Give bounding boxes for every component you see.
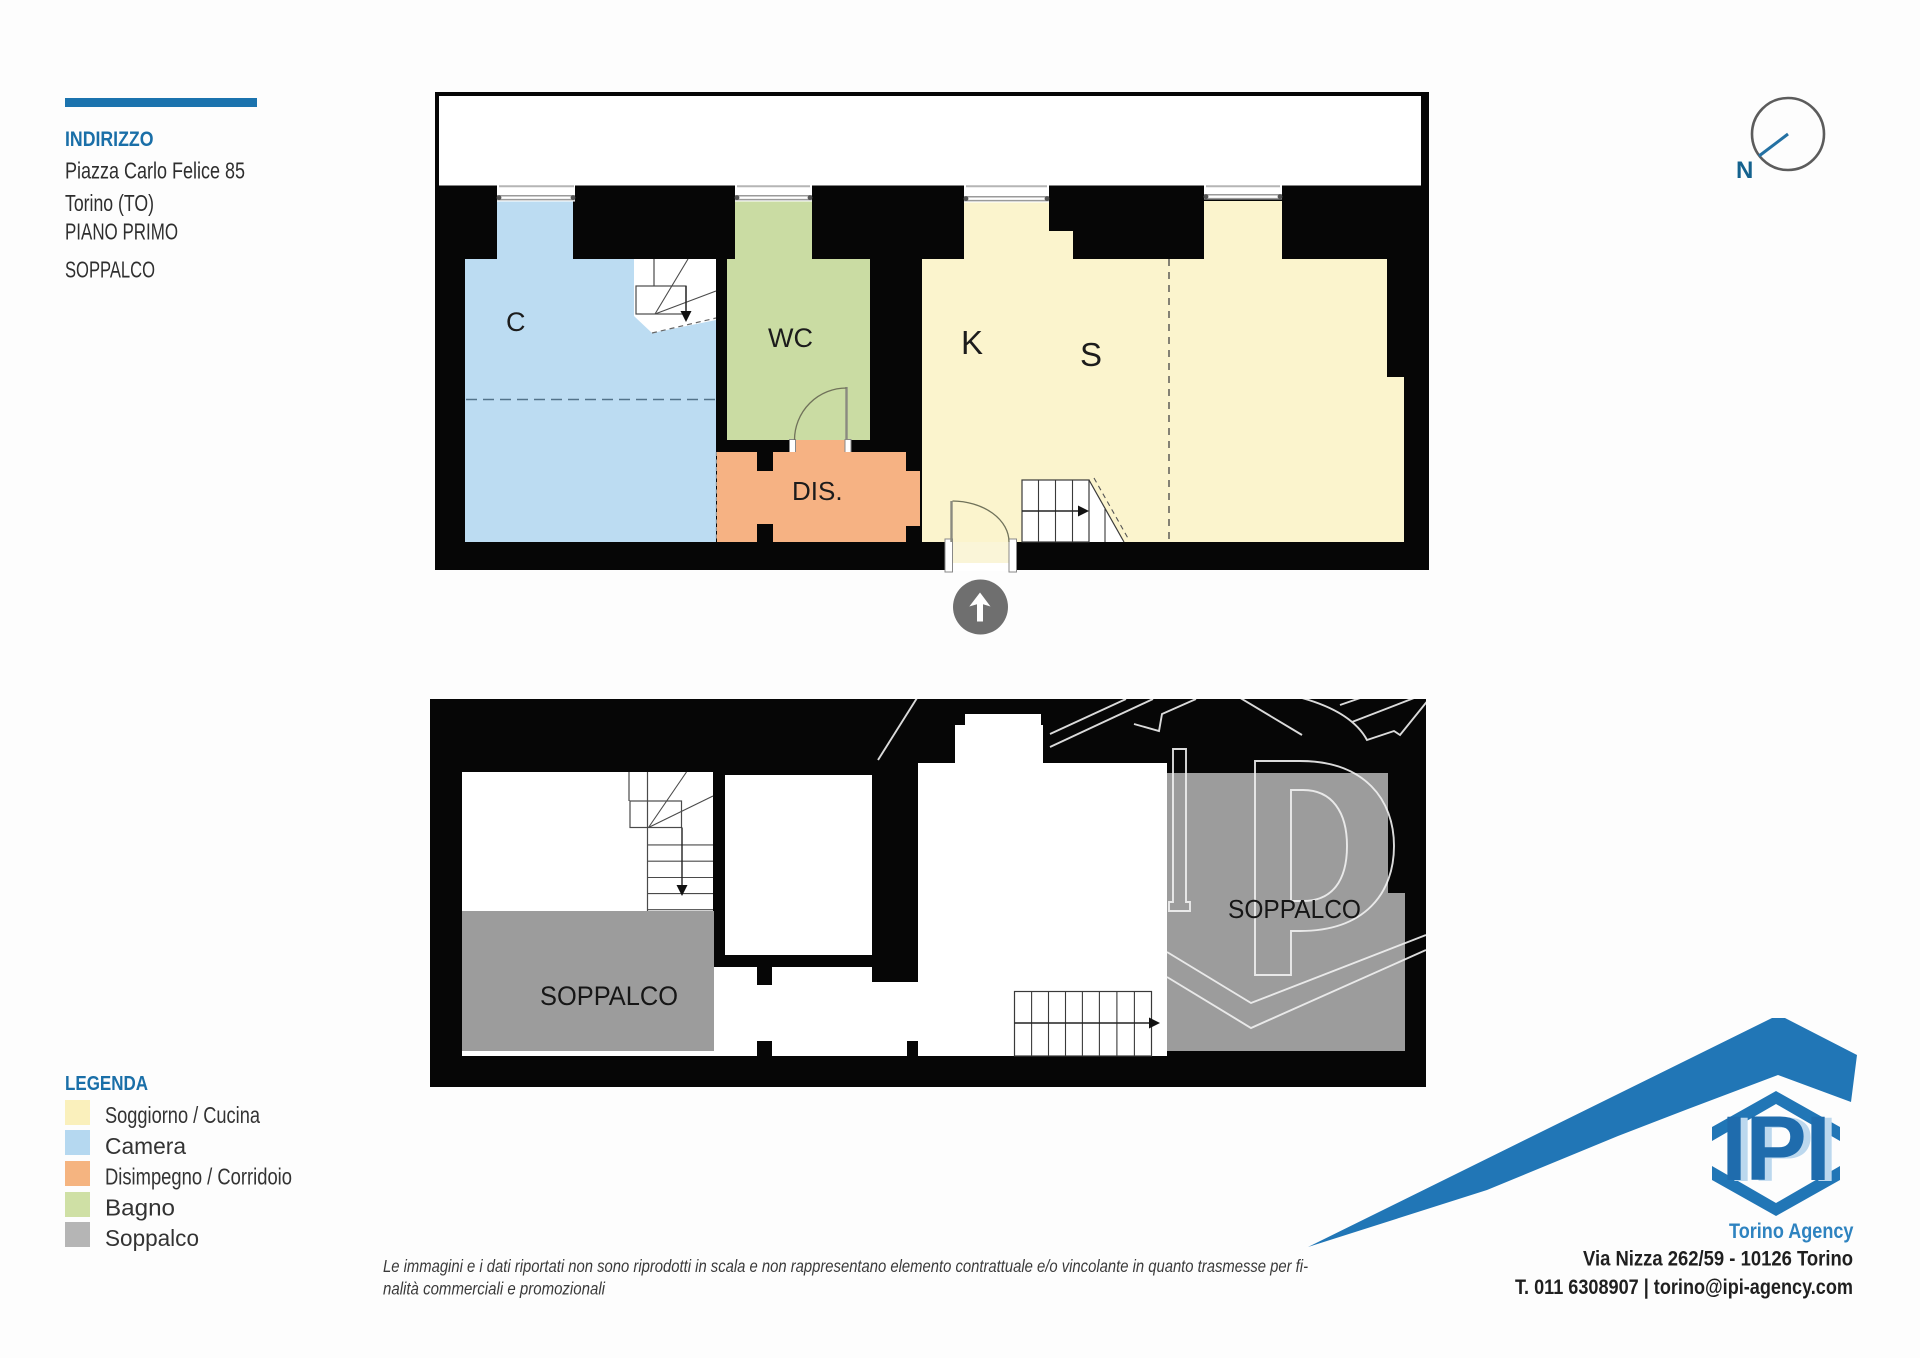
svg-text:Soppalco: Soppalco <box>105 1225 199 1251</box>
svg-text:LEGENDA: LEGENDA <box>65 1073 148 1095</box>
svg-text:nalità commerciali e promozion: nalità commerciali e promozionali <box>383 1279 606 1299</box>
svg-text:Torino Agency: Torino Agency <box>1729 1220 1854 1243</box>
svg-text:Disimpegno / Corridoio: Disimpegno / Corridoio <box>105 1164 292 1190</box>
svg-text:I: I <box>1721 1098 1747 1200</box>
svg-text:Camera: Camera <box>105 1133 187 1159</box>
svg-text:T. 011 6308907 | torino@ipi-ag: T. 011 6308907 | torino@ipi-agency.com <box>1515 1275 1853 1299</box>
svg-text:Via Nizza 262/59 - 10126 Torin: Via Nizza 262/59 - 10126 Torino <box>1583 1248 1853 1271</box>
svg-text:Bagno: Bagno <box>105 1195 175 1221</box>
svg-text:I: I <box>1805 1098 1831 1200</box>
svg-text:Soggiorno / Cucina: Soggiorno / Cucina <box>105 1102 261 1128</box>
svg-text:P: P <box>1745 1098 1806 1200</box>
svg-text:Le immagini e i dati riportati: Le immagini e i dati riportati non sono … <box>383 1256 1308 1276</box>
